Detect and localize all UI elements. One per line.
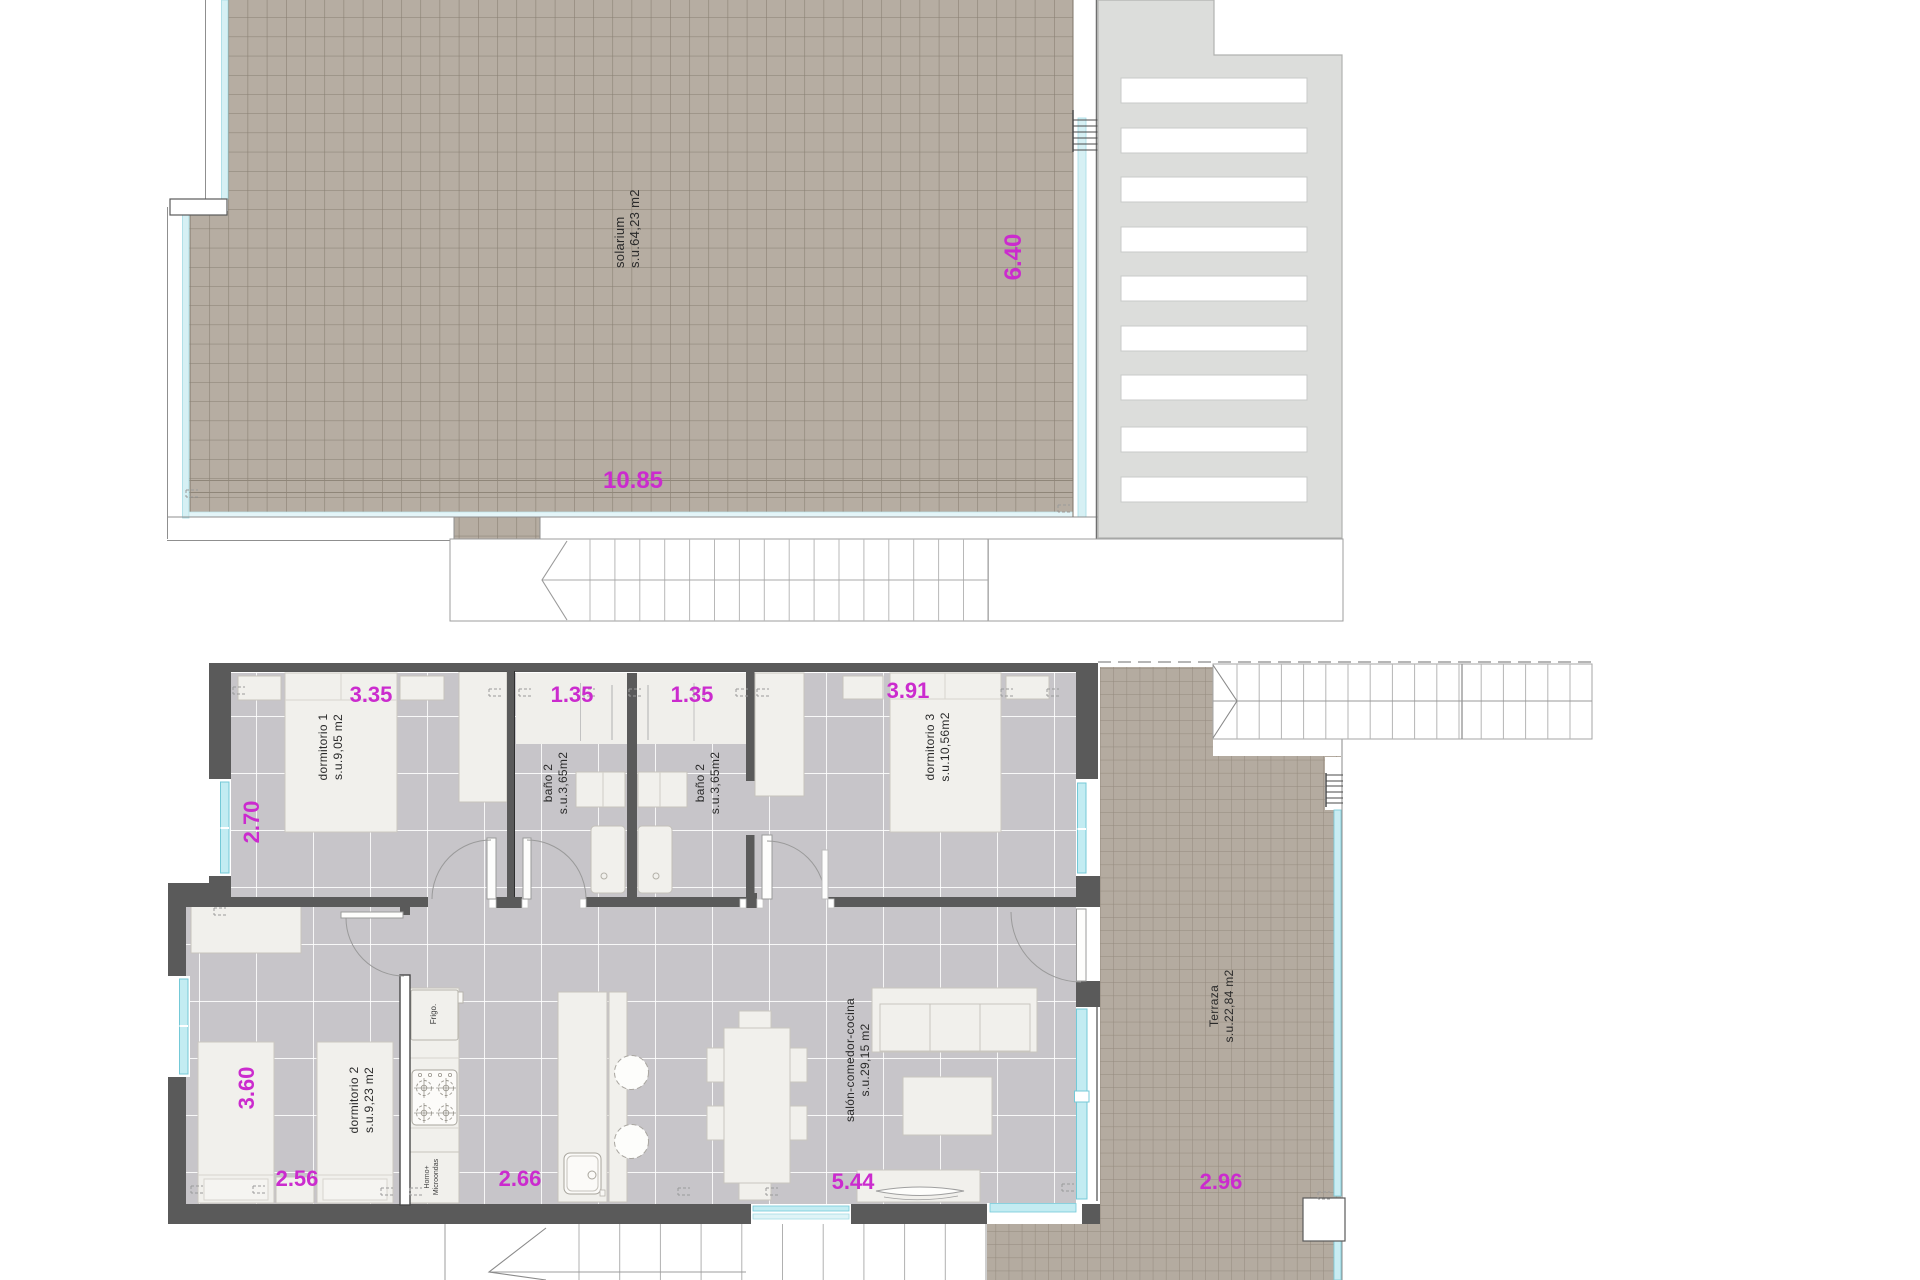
- svg-text:Microondas: Microondas: [433, 1158, 440, 1195]
- svg-text:10.85: 10.85: [603, 467, 663, 494]
- svg-text:salón-comedor-cocina: salón-comedor-cocina: [843, 998, 857, 1122]
- svg-text:Terraza: Terraza: [1207, 985, 1221, 1027]
- svg-text:s.u.10,56m2: s.u.10,56m2: [938, 712, 952, 781]
- svg-text:s.u.22,84 m2: s.u.22,84 m2: [1222, 969, 1236, 1042]
- svg-text:5.44: 5.44: [832, 1169, 876, 1194]
- svg-text:6.40: 6.40: [1000, 234, 1027, 281]
- svg-text:s.u.3,65m2: s.u.3,65m2: [708, 752, 722, 814]
- svg-text:baño 2: baño 2: [693, 764, 707, 803]
- svg-text:s.u.9,23 m2: s.u.9,23 m2: [362, 1067, 376, 1133]
- svg-text:Frigo.: Frigo.: [429, 1004, 438, 1024]
- svg-text:2.56: 2.56: [276, 1166, 319, 1191]
- svg-text:s.u.29,15 m2: s.u.29,15 m2: [858, 1023, 872, 1096]
- svg-text:dormitorio 2: dormitorio 2: [347, 1067, 361, 1134]
- svg-text:2.96: 2.96: [1200, 1169, 1243, 1194]
- svg-text:s.u.3,65m2: s.u.3,65m2: [556, 752, 570, 814]
- svg-text:solarium: solarium: [612, 216, 627, 268]
- svg-text:3.60: 3.60: [234, 1067, 259, 1110]
- svg-text:dormitorio 1: dormitorio 1: [316, 714, 330, 781]
- svg-text:2.70: 2.70: [239, 801, 264, 844]
- svg-text:3.35: 3.35: [350, 682, 393, 707]
- svg-text:3.91: 3.91: [887, 678, 930, 703]
- svg-text:s.u.64,23 m2: s.u.64,23 m2: [627, 189, 642, 268]
- svg-text:dormitorio 3: dormitorio 3: [923, 714, 937, 781]
- svg-text:baño 2: baño 2: [541, 764, 555, 803]
- svg-text:1.35: 1.35: [551, 682, 594, 707]
- svg-text:1.35: 1.35: [671, 682, 714, 707]
- svg-text:s.u.9,05 m2: s.u.9,05 m2: [331, 714, 345, 780]
- svg-text:2.66: 2.66: [499, 1166, 542, 1191]
- svg-text:Horno+: Horno+: [424, 1165, 431, 1188]
